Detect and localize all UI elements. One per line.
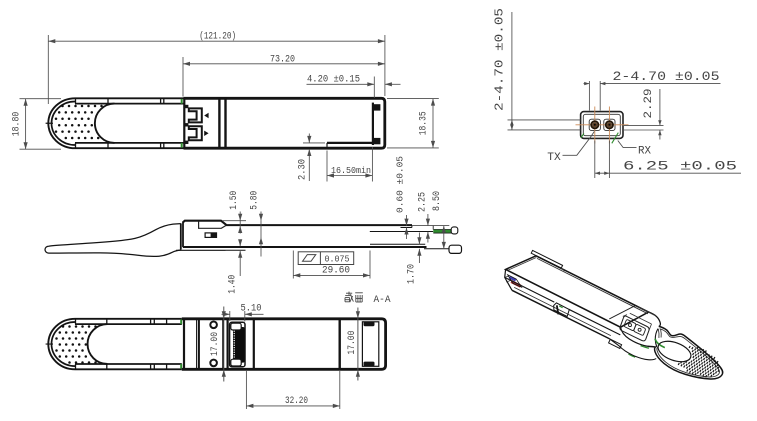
svg-text:1.70: 1.70 — [406, 264, 417, 284]
svg-text:RX: RX — [638, 145, 651, 157]
svg-text:2.30: 2.30 — [296, 159, 307, 180]
svg-text:A-A: A-A — [374, 294, 392, 306]
svg-text:4.20 ±0.15: 4.20 ±0.15 — [307, 74, 360, 85]
svg-text:5.10: 5.10 — [241, 303, 262, 314]
svg-text:5.80: 5.80 — [249, 191, 260, 210]
svg-text:1.40: 1.40 — [227, 275, 238, 294]
svg-text:8.50: 8.50 — [431, 191, 442, 211]
svg-text:2-4.70 ±0.05: 2-4.70 ±0.05 — [613, 70, 720, 84]
svg-text:2-4.70 ±0.05: 2-4.70 ±0.05 — [494, 8, 507, 111]
svg-text:16.50min: 16.50min — [331, 165, 371, 176]
svg-text:0.075: 0.075 — [325, 253, 350, 264]
svg-text:32.20: 32.20 — [285, 395, 308, 406]
svg-text:18.35: 18.35 — [418, 111, 429, 135]
svg-text:TX: TX — [547, 152, 561, 164]
svg-text:29.60: 29.60 — [322, 265, 350, 276]
svg-text:(121.20): (121.20) — [199, 31, 236, 42]
svg-text:17.00: 17.00 — [346, 331, 357, 355]
svg-text:73.20: 73.20 — [270, 53, 295, 64]
svg-text:6.25 ±0.05: 6.25 ±0.05 — [623, 159, 737, 173]
svg-text:18.80: 18.80 — [10, 112, 21, 137]
svg-text:1.50: 1.50 — [228, 191, 239, 210]
svg-text:0.60 ±0.05: 0.60 ±0.05 — [394, 156, 405, 213]
svg-text:17.00: 17.00 — [209, 332, 220, 356]
svg-text:2.29: 2.29 — [643, 89, 655, 119]
svg-text:2.25: 2.25 — [417, 192, 428, 212]
